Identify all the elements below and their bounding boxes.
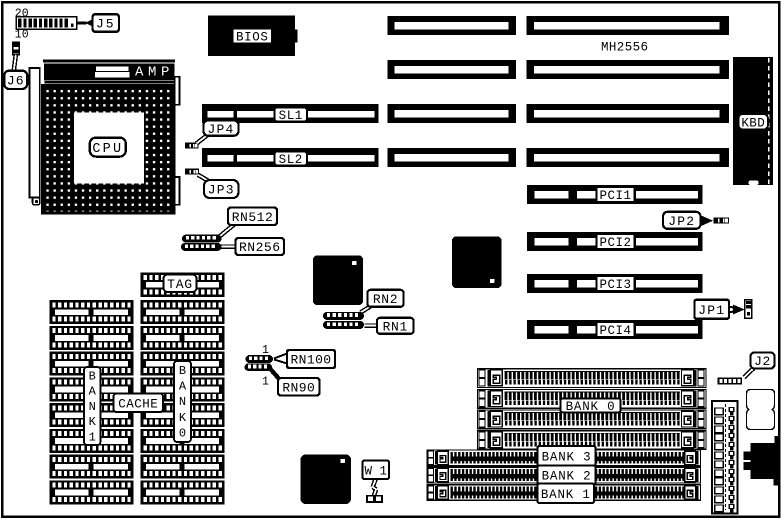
- svg-text:CPU: CPU: [92, 142, 123, 157]
- svg-text:J2: J2: [754, 354, 771, 369]
- svg-text:BANK 3: BANK 3: [542, 451, 592, 465]
- svg-text:SL1: SL1: [279, 109, 303, 123]
- svg-text:PCI4: PCI4: [599, 324, 631, 338]
- svg-text:JP3: JP3: [208, 183, 235, 198]
- svg-text:BIOS: BIOS: [236, 31, 268, 45]
- svg-text:AMP: AMP: [135, 65, 174, 81]
- svg-text:K: K: [179, 411, 187, 425]
- svg-text:N: N: [179, 395, 186, 409]
- svg-text:K: K: [89, 415, 97, 429]
- svg-text:PCI1: PCI1: [599, 189, 631, 203]
- svg-text:JP4: JP4: [207, 122, 234, 137]
- svg-text:JP2: JP2: [668, 214, 695, 229]
- svg-text:PCI2: PCI2: [599, 236, 631, 250]
- svg-text:RN1: RN1: [383, 319, 408, 334]
- svg-text:A: A: [89, 385, 97, 399]
- svg-text:BANK 1: BANK 1: [541, 488, 591, 502]
- svg-text:W 1: W 1: [364, 464, 387, 478]
- svg-text:TAG: TAG: [167, 277, 193, 292]
- svg-text:N: N: [89, 400, 96, 414]
- svg-text:RN256: RN256: [239, 240, 281, 255]
- svg-text:SL2: SL2: [279, 153, 303, 167]
- svg-text:1: 1: [262, 344, 269, 357]
- svg-text:RN2: RN2: [373, 292, 398, 307]
- svg-text:1: 1: [262, 376, 269, 389]
- svg-text:B: B: [89, 370, 96, 384]
- svg-text:J5: J5: [96, 17, 116, 32]
- svg-text:BANK 2: BANK 2: [542, 470, 592, 484]
- svg-text:A: A: [179, 380, 187, 394]
- svg-text:20: 20: [15, 7, 29, 20]
- svg-text:RN100: RN100: [290, 353, 331, 368]
- svg-text:PCI3: PCI3: [599, 278, 631, 292]
- svg-text:10: 10: [15, 29, 29, 42]
- svg-text:1: 1: [89, 430, 96, 444]
- svg-text:RN90: RN90: [282, 380, 315, 395]
- svg-text:B: B: [179, 364, 186, 378]
- svg-text:KBD: KBD: [741, 116, 765, 130]
- svg-text:RN512: RN512: [232, 210, 274, 225]
- svg-text:0: 0: [179, 426, 186, 440]
- svg-text:CACHE: CACHE: [118, 397, 158, 411]
- svg-text:BANK 0: BANK 0: [566, 400, 616, 414]
- svg-text:MH2556: MH2556: [601, 40, 648, 54]
- svg-text:JP1: JP1: [698, 303, 725, 318]
- svg-text:J6: J6: [7, 73, 25, 88]
